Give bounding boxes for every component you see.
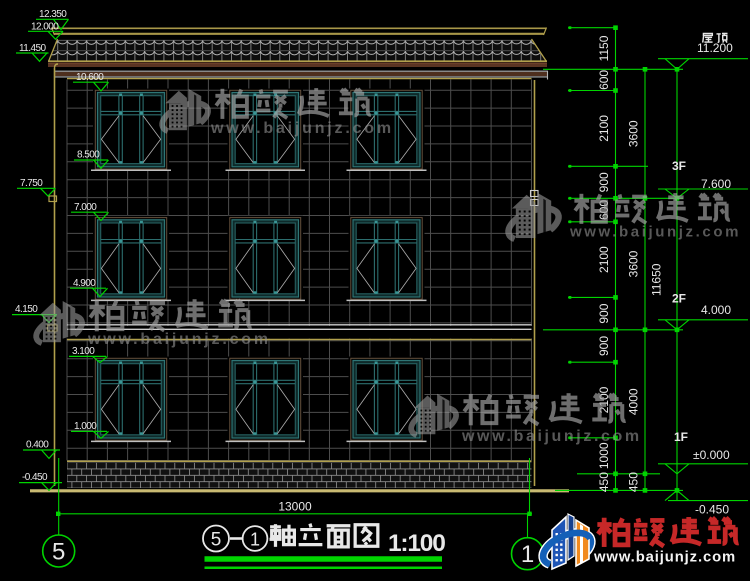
svg-text:3F: 3F	[672, 159, 686, 173]
svg-text:900: 900	[597, 336, 611, 356]
svg-text:1:100: 1:100	[388, 530, 445, 557]
svg-text:2F: 2F	[672, 292, 686, 306]
svg-text:10.600: 10.600	[76, 72, 104, 83]
svg-text:4.150: 4.150	[15, 304, 38, 315]
svg-text:900: 900	[597, 172, 611, 192]
svg-text:11.450: 11.450	[19, 43, 47, 54]
svg-text:1150: 1150	[597, 35, 611, 61]
svg-text:www.baijunjz.com: www.baijunjz.com	[87, 331, 271, 348]
svg-text:4000: 4000	[627, 388, 641, 415]
svg-text:1.000: 1.000	[74, 421, 97, 432]
svg-text:2100: 2100	[597, 246, 611, 273]
svg-text:4.900: 4.900	[73, 278, 96, 289]
svg-text:3600: 3600	[627, 250, 641, 277]
svg-text:www.baijunjz.com: www.baijunjz.com	[593, 550, 736, 566]
svg-text:1: 1	[521, 541, 534, 568]
svg-text:13000: 13000	[278, 500, 312, 514]
svg-text:11.200: 11.200	[697, 41, 733, 55]
svg-text:4.000: 4.000	[701, 303, 731, 317]
svg-text:www.baijunjz.com: www.baijunjz.com	[210, 120, 394, 137]
svg-text:7.000: 7.000	[74, 202, 97, 213]
svg-text:7.750: 7.750	[20, 178, 43, 189]
svg-text:www.baijunjz.com: www.baijunjz.com	[569, 224, 741, 241]
svg-text:1F: 1F	[674, 430, 688, 444]
svg-text:8.500: 8.500	[77, 150, 100, 161]
svg-text:5: 5	[52, 539, 65, 566]
svg-text:900: 900	[597, 303, 611, 323]
svg-text:-0.450: -0.450	[22, 472, 48, 483]
svg-text:5: 5	[211, 530, 222, 551]
svg-text:3600: 3600	[627, 120, 641, 147]
svg-text:-0.450: -0.450	[695, 503, 729, 517]
svg-text:11650: 11650	[650, 263, 664, 296]
svg-text:2100: 2100	[597, 115, 611, 142]
svg-text:1: 1	[250, 530, 260, 550]
svg-text:1000: 1000	[597, 442, 611, 469]
svg-text:450: 450	[627, 472, 641, 492]
svg-text:0.400: 0.400	[26, 440, 49, 451]
svg-text:12.350: 12.350	[39, 9, 67, 20]
svg-text:±0.000: ±0.000	[693, 448, 730, 462]
svg-text:600: 600	[597, 70, 611, 90]
svg-text:www.baijunjz.com: www.baijunjz.com	[461, 428, 642, 445]
svg-text:450: 450	[597, 472, 611, 492]
